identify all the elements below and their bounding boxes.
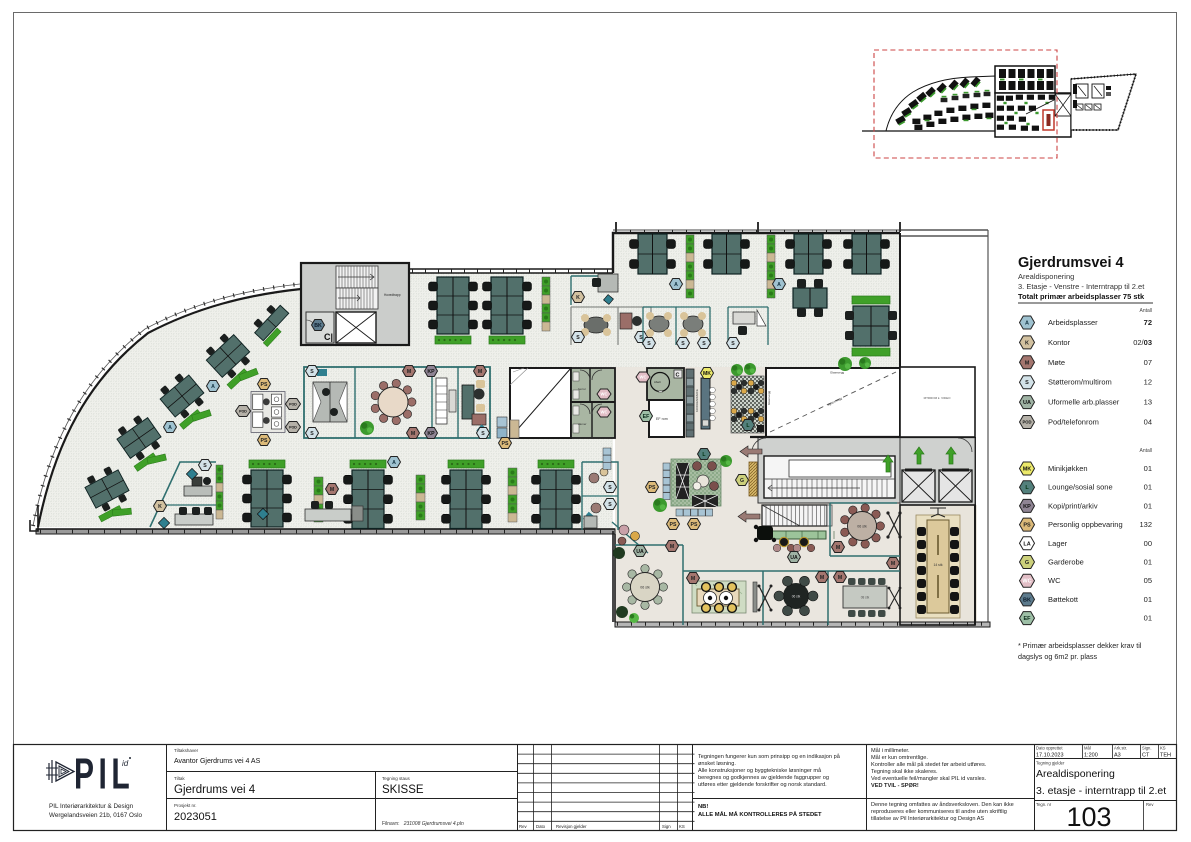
svg-text:C: C	[676, 373, 680, 379]
svg-text:Kontor: Kontor	[1048, 338, 1071, 347]
svg-text:PS: PS	[1023, 523, 1031, 529]
svg-text:damer: damer	[578, 422, 587, 426]
svg-text:A3: A3	[1114, 753, 1121, 759]
svg-text:WC: WC	[601, 392, 608, 397]
svg-text:Glassvegg: Glassvegg	[767, 390, 771, 405]
svg-text:01: 01	[1144, 595, 1152, 604]
svg-text:3. Etasje - Venstre - Interntr: 3. Etasje - Venstre - Interntrapp til 2.…	[1018, 282, 1145, 291]
svg-text:SKISSE: SKISSE	[382, 784, 424, 796]
svg-text:S: S	[203, 463, 207, 469]
svg-text:KP: KP	[427, 369, 435, 375]
svg-text:M: M	[1025, 360, 1030, 366]
svg-text:Bøttekott: Bøttekott	[1048, 595, 1079, 604]
svg-text:PS: PS	[261, 382, 268, 388]
svg-text:A: A	[211, 384, 215, 390]
svg-text:A: A	[392, 460, 396, 466]
svg-text:CT: CT	[1142, 753, 1150, 759]
svg-text:BK: BK	[1023, 597, 1031, 603]
svg-text:A: A	[1025, 320, 1029, 326]
svg-text:132: 132	[1139, 520, 1152, 529]
svg-text:herrer: herrer	[578, 387, 586, 391]
svg-text:EF rom: EF rom	[656, 417, 668, 421]
svg-text:M: M	[670, 544, 674, 550]
svg-text:TEH: TEH	[1160, 753, 1171, 759]
svg-text:WC: WC	[601, 410, 608, 415]
svg-text:13: 13	[1144, 398, 1152, 407]
svg-text:PS: PS	[649, 485, 656, 491]
svg-text:KS: KS	[1160, 746, 1166, 751]
svg-text:K: K	[158, 504, 162, 510]
svg-text:Glassvegg: Glassvegg	[830, 371, 845, 375]
svg-text:S: S	[702, 341, 706, 347]
svg-text:S: S	[310, 369, 314, 375]
svg-text:Dato: Dato	[536, 824, 546, 829]
svg-text:Tiltakshaver: Tiltakshaver	[174, 748, 199, 753]
svg-text:POD: POD	[239, 409, 247, 413]
svg-text:Kopi/print/arkiv: Kopi/print/arkiv	[1048, 501, 1098, 510]
svg-text:KP: KP	[427, 431, 435, 437]
svg-text:72: 72	[1144, 318, 1152, 327]
svg-text:S: S	[481, 431, 485, 437]
svg-text:Lounge/sosial sone: Lounge/sosial sone	[1048, 483, 1113, 492]
svg-text:Revisjon gjelder: Revisjon gjelder	[556, 824, 587, 829]
svg-text:S: S	[576, 335, 580, 341]
svg-text:Tegning staus: Tegning staus	[382, 776, 411, 781]
svg-text:Totalt primær arbeidsplasser 7: Totalt primær arbeidsplasser 75 stk	[1018, 292, 1145, 301]
svg-text:02/03: 02/03	[1133, 338, 1152, 347]
svg-text:Sign: Sign	[662, 824, 671, 829]
svg-text:LA: LA	[1023, 541, 1030, 547]
svg-text:EF: EF	[643, 414, 650, 420]
svg-text:M: M	[330, 487, 334, 493]
svg-text:POD: POD	[1022, 420, 1031, 425]
svg-text:Arealdisponering: Arealdisponering	[1018, 272, 1074, 281]
svg-text:BK: BK	[314, 323, 322, 329]
svg-text:S: S	[310, 431, 314, 437]
svg-text:PS: PS	[691, 522, 698, 528]
svg-text:A: A	[777, 282, 781, 288]
svg-text:Tegn. nr: Tegn. nr	[1036, 802, 1052, 807]
svg-text:Garderobe: Garderobe	[1048, 558, 1084, 567]
svg-text:K: K	[1025, 340, 1029, 346]
svg-text:Ark.str.: Ark.str.	[1114, 746, 1127, 751]
svg-text:Minikjøkken: Minikjøkken	[1048, 464, 1088, 473]
svg-text:14 stk: 14 stk	[933, 563, 942, 567]
svg-text:M: M	[691, 576, 695, 582]
svg-text:KJOKKEN/KAFFE: KJOKKEN/KAFFE	[695, 389, 699, 412]
svg-text:06 stk: 06 stk	[792, 595, 801, 599]
svg-text:PIL: PIL	[74, 749, 134, 798]
svg-text:id: id	[122, 759, 129, 768]
svg-text:G: G	[1025, 560, 1029, 566]
svg-text:01: 01	[1144, 614, 1152, 623]
svg-text:Filnavn: 231008 Gjerdrumsvei: Filnavn: 231008 Gjerdrumsvei 4.pln	[382, 821, 464, 827]
svg-text:12: 12	[1144, 378, 1152, 387]
svg-text:01: 01	[1144, 558, 1152, 567]
svg-text:07: 07	[1144, 358, 1152, 367]
svg-text:1:200: 1:200	[1084, 753, 1098, 759]
svg-text:Mål: Mål	[1084, 746, 1091, 751]
svg-text:01: 01	[1144, 464, 1152, 473]
svg-text:WC: WC	[640, 375, 647, 380]
svg-text:Møte: Møte	[1048, 358, 1065, 367]
svg-text:Prosjekt nr.: Prosjekt nr.	[174, 803, 197, 808]
svg-text:PS: PS	[261, 438, 268, 444]
svg-text:17.10.2023: 17.10.2023	[1036, 753, 1064, 759]
svg-text:PIL Interiørarkitektur & Desig: PIL Interiørarkitektur & Design	[49, 803, 134, 810]
svg-text:KP: KP	[1023, 504, 1031, 510]
svg-text:Wergelandsveien 21b, 0167 Oslo: Wergelandsveien 21b, 0167 Oslo	[49, 812, 142, 819]
svg-text:05: 05	[1144, 576, 1152, 585]
svg-text:Lager: Lager	[1048, 539, 1068, 548]
svg-text:A: A	[168, 425, 172, 431]
svg-text:ALLE MÅL MÅ KONTROLLERES PÅ ST: ALLE MÅL MÅ KONTROLLERES PÅ STEDET	[698, 811, 822, 818]
svg-text:Gjerdrumsvei 4: Gjerdrumsvei 4	[1018, 255, 1124, 271]
svg-text:WC: WC	[1022, 579, 1031, 585]
svg-text:POD: POD	[289, 402, 297, 406]
svg-text:MTRROM k. VIDEO: MTRROM k. VIDEO	[924, 396, 951, 400]
svg-text:Støtterom/multirom: Støtterom/multirom	[1048, 378, 1112, 387]
svg-text:M: M	[891, 561, 895, 567]
svg-text:Avantor Gjerdrums vei 4 AS: Avantor Gjerdrums vei 4 AS	[174, 758, 261, 765]
svg-text:Tiltak: Tiltak	[174, 776, 185, 781]
svg-text:06 stk: 06 stk	[857, 525, 867, 529]
svg-text:S: S	[681, 341, 685, 347]
svg-text:Uformelle arb.plasser: Uformelle arb.plasser	[1048, 398, 1120, 407]
svg-text:04: 04	[1144, 418, 1152, 427]
svg-text:M: M	[838, 575, 842, 581]
svg-text:UA: UA	[790, 555, 798, 561]
svg-text:C|: C|	[324, 332, 333, 342]
svg-text:M: M	[836, 545, 840, 551]
svg-text:Dato opprettet: Dato opprettet	[1036, 746, 1063, 751]
svg-text:3. etasje - interntrapp til 2.: 3. etasje - interntrapp til 2.et	[1036, 785, 1166, 797]
svg-text:01: 01	[1144, 501, 1152, 510]
svg-text:S: S	[731, 341, 735, 347]
svg-text:dagslys og 6m2 pr. plass: dagslys og 6m2 pr. plass	[1018, 652, 1098, 661]
svg-text:Pod/telefonrom: Pod/telefonrom	[1048, 418, 1099, 427]
svg-text:M: M	[820, 575, 824, 581]
svg-text:Rev: Rev	[1146, 802, 1154, 807]
svg-text:06 stk: 06 stk	[640, 586, 650, 590]
svg-text:Gjerdrums vei 4: Gjerdrums vei 4	[174, 784, 256, 796]
svg-text:103: 103	[1066, 802, 1111, 832]
svg-text:S: S	[608, 485, 612, 491]
svg-text:* Primær arbeidsplasser dekker: * Primær arbeidsplasser dekker krav til	[1018, 641, 1142, 650]
svg-text:Personlig oppbevaring: Personlig oppbevaring	[1048, 520, 1123, 529]
svg-text:G: G	[740, 478, 744, 484]
svg-text:Arealdisponering: Arealdisponering	[1036, 768, 1115, 780]
svg-text:08 stk: 08 stk	[861, 596, 870, 600]
svg-text:M: M	[478, 369, 482, 375]
svg-text:POD: POD	[289, 425, 297, 429]
svg-text:Arbeidsplasser: Arbeidsplasser	[1048, 318, 1098, 327]
svg-text:NB!: NB!	[698, 804, 708, 810]
svg-text:K: K	[576, 295, 580, 301]
svg-text:00: 00	[1144, 539, 1152, 548]
svg-text:MK: MK	[1023, 466, 1032, 472]
svg-text:01: 01	[1144, 483, 1152, 492]
svg-text:M: M	[411, 431, 415, 437]
svg-text:WC: WC	[1048, 576, 1061, 585]
svg-text:Sign.: Sign.	[1142, 746, 1152, 751]
svg-text:Antall: Antall	[1139, 308, 1152, 314]
svg-text:MK: MK	[703, 371, 711, 377]
svg-text:S: S	[1025, 380, 1029, 386]
svg-text:UA: UA	[1023, 400, 1031, 406]
svg-text:M: M	[407, 369, 411, 375]
svg-text:S: S	[647, 341, 651, 347]
svg-text:AbaC: AbaC	[654, 380, 661, 384]
svg-text:Rev: Rev	[519, 824, 527, 829]
svg-text:Tegningen fungerer kun som pri: Tegningen fungerer kun som prinsipp og e…	[698, 753, 841, 788]
svg-text:2023051: 2023051	[174, 811, 217, 823]
svg-text:Hovedtrapp: Hovedtrapp	[384, 293, 401, 297]
svg-text:A: A	[674, 282, 678, 288]
svg-text:Antall: Antall	[1139, 448, 1152, 454]
svg-text:Tegning gjelder: Tegning gjelder	[1036, 761, 1065, 766]
svg-text:KS: KS	[679, 824, 685, 829]
svg-text:PS: PS	[502, 441, 509, 447]
svg-text:PS: PS	[670, 522, 677, 528]
svg-text:EF: EF	[1023, 616, 1031, 622]
svg-text:S: S	[608, 502, 612, 508]
svg-text:UA: UA	[636, 549, 644, 555]
